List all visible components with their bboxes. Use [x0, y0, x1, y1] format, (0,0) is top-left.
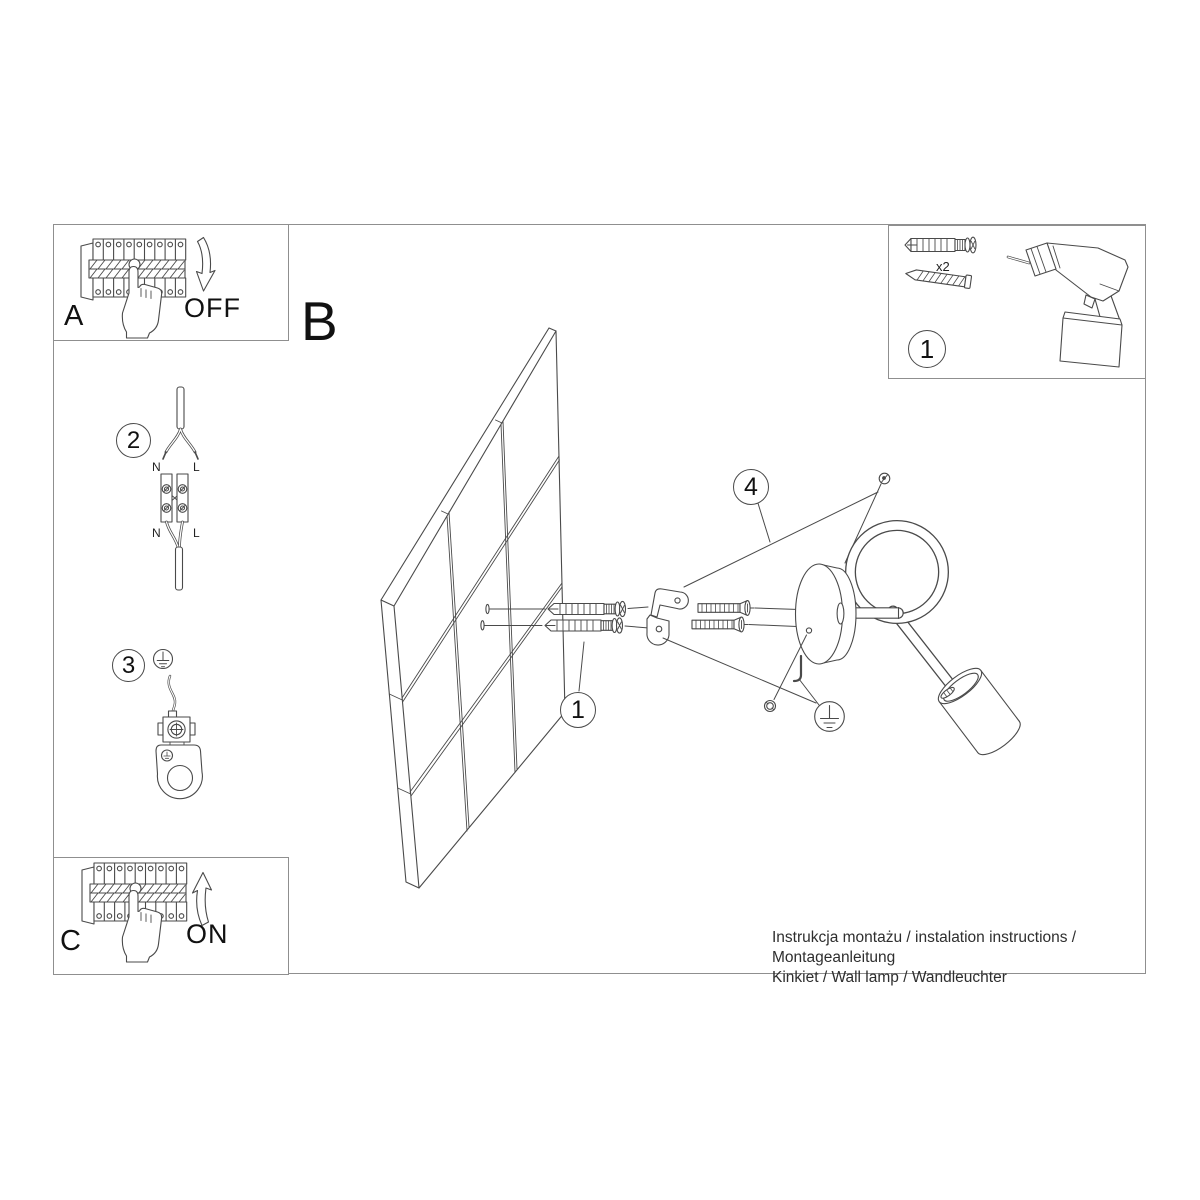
instruction-sheet: A OFF B C ON 1 x2 2 N L N L 3 1 4 Instru… [0, 0, 1200, 1200]
arrow-up-icon [193, 873, 212, 926]
terminal-label-n-bottom: N [152, 527, 161, 539]
diagram-artwork [0, 0, 1200, 1200]
drill-icon [1008, 243, 1128, 367]
box-a-state: OFF [184, 295, 241, 322]
wall-plug-lower [545, 618, 623, 633]
ground-connector-diagram [154, 650, 203, 799]
footer-text: Instrukcja montażu / instalation instruc… [772, 928, 1200, 988]
wall-plug-upper [548, 601, 626, 616]
box-c-label: C [60, 927, 81, 956]
terminal-label-l-bottom: L [193, 527, 200, 539]
footer-line-1: Instrukcja montażu / instalation instruc… [772, 928, 1200, 968]
terminal-label-l-top: L [193, 461, 200, 473]
kit-step-callout: 1 [908, 330, 946, 368]
ground-nut-icon [765, 701, 776, 712]
footer-line-2: Kinkiet / Wall lamp / Wandleuchter [772, 968, 1200, 988]
small-screw-icon [879, 473, 890, 484]
plug-callout: 1 [560, 692, 596, 728]
wall-plug-kit-icon [905, 237, 976, 253]
wall-lamp [765, 473, 1026, 761]
mounting-screw-lower [692, 617, 748, 632]
arrow-down-icon [197, 238, 216, 292]
terminal-label-n-top: N [152, 461, 161, 473]
lamp-canopy [796, 564, 857, 664]
section-b-label: B [301, 294, 338, 349]
ground-symbol-icon [154, 650, 173, 669]
anchor-quantity: x2 [936, 260, 950, 273]
ground-wire [794, 656, 801, 681]
wall-panel [381, 328, 565, 888]
wiring-step-callout: 2 [116, 423, 151, 458]
grounding-step-callout: 3 [112, 649, 145, 682]
ground-symbol-icon [815, 702, 845, 732]
bracket-callout: 4 [733, 469, 769, 505]
mounting-bracket [647, 589, 688, 645]
mounting-screw-upper [698, 601, 754, 616]
box-a-label: A [64, 302, 83, 331]
wiring-diagram [161, 387, 198, 590]
box-c-state: ON [186, 921, 229, 948]
